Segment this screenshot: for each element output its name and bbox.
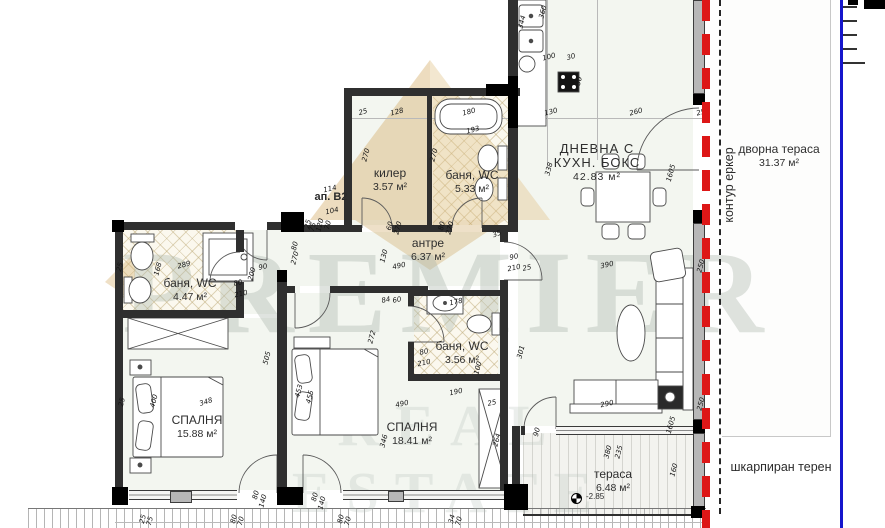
door-arc bbox=[524, 397, 556, 429]
wardrobe-icon bbox=[128, 318, 228, 349]
armchair-icon bbox=[650, 247, 687, 282]
door-arc bbox=[303, 455, 341, 493]
wall bbox=[277, 270, 287, 498]
room-label-living: ДНЕВНА С КУХН. БОКС 42.83 м² bbox=[554, 142, 641, 184]
wall bbox=[500, 280, 508, 498]
wall bbox=[408, 290, 500, 296]
wall bbox=[267, 222, 281, 230]
boundary-tick bbox=[843, 6, 857, 8]
wall bbox=[408, 374, 504, 381]
window-sill bbox=[388, 491, 404, 502]
wall bbox=[408, 290, 414, 306]
entry-threshold bbox=[281, 212, 304, 232]
door-arc bbox=[637, 108, 699, 170]
sofa-icon bbox=[570, 247, 693, 413]
terrace-edge bbox=[523, 514, 700, 516]
room-label-yard-terrace: дворна тераса31.37 м² bbox=[738, 142, 819, 170]
room-label-bedroom1: СПАЛНЯ15.88 м² bbox=[172, 413, 223, 441]
wall bbox=[115, 310, 244, 318]
furniture-layer bbox=[0, 0, 885, 528]
room-label-bath2: баня, WC4.47 м² bbox=[163, 276, 216, 304]
wall bbox=[344, 96, 352, 232]
window-sill bbox=[170, 491, 192, 503]
wall bbox=[512, 426, 520, 490]
coffee-table-icon bbox=[617, 305, 645, 361]
door-arc bbox=[239, 455, 277, 493]
elevation-label: -2.85 bbox=[586, 492, 604, 501]
drawing-fragment bbox=[864, 0, 885, 9]
wall-column bbox=[112, 220, 124, 232]
bed-icon bbox=[292, 337, 378, 435]
toilet-icon bbox=[131, 234, 154, 270]
wall bbox=[408, 342, 414, 378]
wall-column bbox=[486, 84, 512, 96]
wall-column bbox=[112, 487, 128, 505]
door-arc bbox=[452, 198, 482, 228]
terrain-label: шкарпиран терен bbox=[730, 460, 831, 474]
floor-plan: PREMIER REAL ESTATE bbox=[0, 0, 885, 528]
room-label-hall: антре6.37 м² bbox=[411, 236, 445, 264]
toilet-icon bbox=[467, 313, 500, 335]
wall bbox=[521, 426, 525, 435]
sink-icon bbox=[124, 277, 151, 303]
wall bbox=[115, 222, 235, 230]
elevation-marker-icon bbox=[571, 493, 582, 504]
wall-column bbox=[277, 487, 303, 505]
bay-contour-line bbox=[702, 0, 710, 528]
plot-boundary-line bbox=[840, 0, 843, 528]
room-label-bedroom2: СПАЛНЯ18.41 м² bbox=[387, 420, 438, 448]
room-label-terrace: тераса6.48 м² bbox=[594, 467, 632, 495]
boundary-tick bbox=[843, 48, 857, 50]
boundary-tick bbox=[843, 20, 857, 22]
window-band bbox=[343, 490, 505, 500]
room-label-pantry: килер3.57 м² bbox=[373, 166, 407, 194]
boundary-tick bbox=[843, 34, 857, 36]
door-arc bbox=[295, 293, 330, 328]
wall-column bbox=[504, 484, 528, 510]
room-label-bath1: баня, WC5.33 м² bbox=[445, 168, 498, 196]
shower-icon bbox=[203, 233, 253, 281]
wall-column bbox=[277, 270, 287, 282]
drawing-fragment bbox=[848, 0, 858, 5]
contour-dash-line bbox=[719, 0, 721, 514]
wall bbox=[236, 230, 244, 252]
bay-contour-label: контур еркер bbox=[722, 147, 736, 222]
boundary-tick bbox=[843, 62, 865, 64]
